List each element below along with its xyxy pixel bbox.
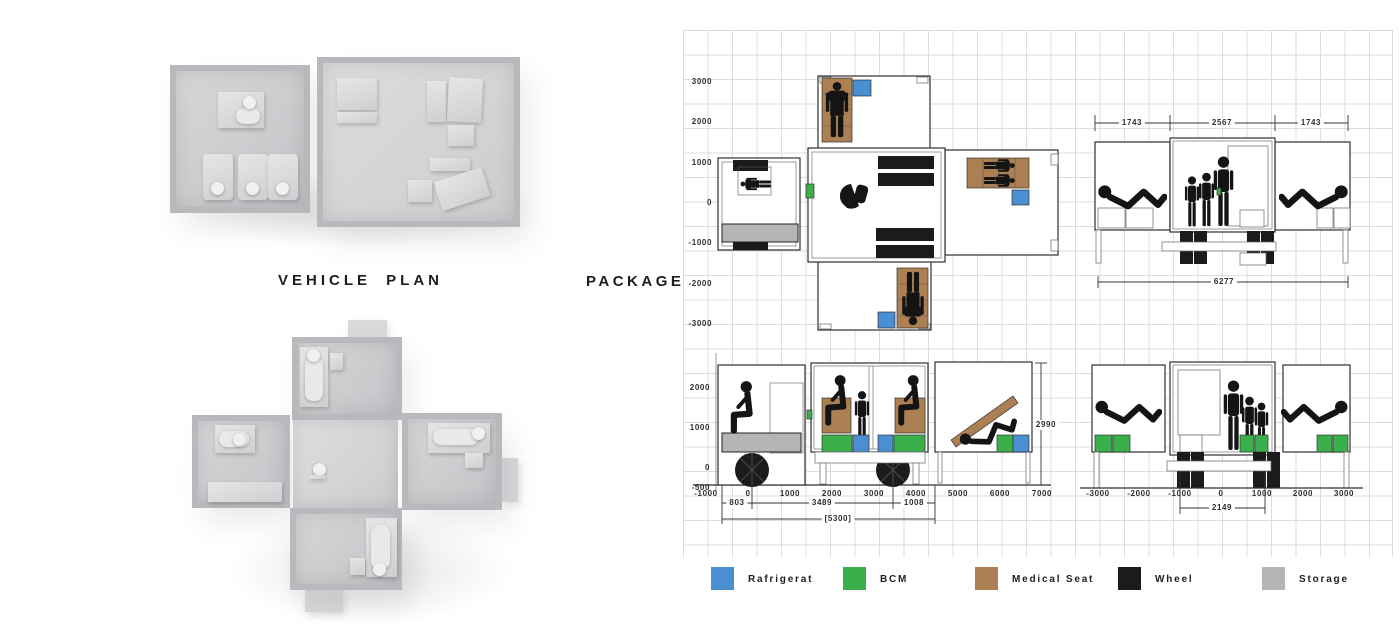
rear-x-axis-label: -3000	[1076, 489, 1120, 499]
refrigerator-block	[878, 435, 893, 452]
side-x-axis-label: 7000	[1020, 489, 1064, 499]
bcm-block	[806, 184, 814, 198]
render-figure-head	[373, 563, 386, 576]
plan-y-axis-label: 3000	[692, 77, 712, 87]
refrigerator-block	[853, 80, 871, 96]
bcm-block	[997, 435, 1013, 452]
plan-y-axis-label: -1000	[689, 238, 712, 248]
dim-label-total-length: [5300]	[822, 514, 855, 524]
render-couch	[208, 482, 282, 502]
render-figure-body	[305, 357, 323, 401]
legend-swatch	[711, 567, 734, 590]
rear-x-axis-label: 1000	[1240, 489, 1284, 499]
bcm-block	[1113, 435, 1130, 452]
plan-y-axis-label: 0	[707, 198, 712, 208]
render-bed	[337, 78, 377, 110]
side-x-axis-label: 5000	[936, 489, 980, 499]
bcm-block	[1255, 435, 1268, 452]
refrigerator-block	[853, 435, 869, 452]
wheel-block	[876, 228, 934, 241]
render-box	[330, 353, 343, 370]
wheel-block	[876, 245, 934, 258]
refrigerator-block	[1013, 435, 1029, 452]
render-box	[408, 180, 432, 202]
side-x-axis-label: 4000	[894, 489, 938, 499]
render-figure-head	[246, 182, 259, 195]
plan-y-axis-label: -2000	[689, 279, 712, 289]
dim-label-body: 2567	[1209, 118, 1235, 128]
bcm-block	[1240, 435, 1254, 452]
legend-swatch	[1118, 567, 1141, 590]
bcm-block	[1317, 435, 1332, 452]
front-wheel	[735, 453, 769, 487]
dim-label-total-width: 6277	[1211, 277, 1237, 287]
render-box	[350, 558, 365, 575]
render-box	[465, 453, 483, 468]
wheel-block	[878, 156, 934, 169]
render-step-right	[502, 458, 518, 502]
dim-label-track: 2149	[1209, 503, 1235, 513]
render-vehicle-plan-expanded	[185, 315, 530, 637]
storage-block	[722, 433, 801, 452]
legend-swatch	[975, 567, 998, 590]
rear-x-axis-label: -1000	[1158, 489, 1202, 499]
rear-x-axis-label: 3000	[1322, 489, 1366, 499]
render-slab	[430, 158, 470, 171]
dim-label-pod-right: 1743	[1298, 118, 1324, 128]
render-box	[448, 125, 474, 146]
rear-x-axis-label: 0	[1199, 489, 1243, 499]
render-wardrobe	[447, 77, 483, 123]
dim-label-rear-overhang: 1008	[901, 498, 927, 508]
plan-y-axis-label: -3000	[689, 319, 712, 329]
bcm-block	[1095, 435, 1112, 452]
render-figure-head	[243, 96, 256, 109]
side-y-axis-label: 2000	[690, 383, 710, 393]
render-wardrobe	[427, 81, 446, 122]
legend-label: Rafrigerat	[748, 574, 813, 585]
render-figure-body	[236, 108, 260, 124]
legend-label: BCM	[880, 574, 908, 585]
render-figure-head	[276, 182, 289, 195]
render-center-figure	[309, 475, 325, 479]
plan-y-axis-label: 1000	[692, 158, 712, 168]
render-vehicle-plan-top	[150, 8, 570, 238]
storage-block	[722, 224, 798, 242]
refrigerator-block	[878, 312, 895, 328]
cad-drawings	[683, 30, 1392, 557]
render-figure-head	[233, 433, 246, 446]
render-bed-slab	[337, 112, 377, 123]
render-figure-head	[211, 182, 224, 195]
bcm-block	[822, 435, 852, 452]
plan-y-axis-label: 2000	[692, 117, 712, 127]
bcm-block	[894, 435, 925, 452]
title-package: PACKAGE	[586, 273, 684, 290]
render-step-top	[348, 320, 387, 338]
front-elevation-drawing	[1095, 115, 1350, 288]
legend-label: Wheel	[1155, 574, 1193, 585]
side-y-axis-label: 1000	[690, 423, 710, 433]
render-figure-head	[472, 427, 485, 440]
dim-label-height: 2990	[1033, 420, 1059, 430]
rear-x-axis-label: -2000	[1117, 489, 1161, 499]
render-center-room	[293, 420, 398, 508]
dim-label-wheelbase: 3489	[809, 498, 835, 508]
legend-swatch	[843, 567, 866, 590]
refrigerator-block	[1012, 190, 1029, 205]
render-step-bottom	[305, 590, 343, 612]
legend-swatch	[1262, 567, 1285, 590]
side-x-axis-label: 1000	[768, 489, 812, 499]
side-x-axis-label: 0	[726, 489, 770, 499]
rear-x-axis-label: 2000	[1281, 489, 1325, 499]
side-x-axis-label: 3000	[852, 489, 896, 499]
plan-view-drawing	[718, 76, 1058, 330]
side-x-axis-label: -1000	[684, 489, 728, 499]
dim-label-pod-left: 1743	[1119, 118, 1145, 128]
side-x-axis-label: 2000	[810, 489, 854, 499]
side-y-axis-label: 0	[705, 463, 710, 473]
title-vehicle-plan: VEHICLE PLAN	[278, 272, 443, 289]
presentation-canvas: VEHICLE PLAN PACKAGE	[0, 0, 1400, 637]
dim-label-front-overhang: 803	[726, 498, 747, 508]
side-x-axis-label: 6000	[978, 489, 1022, 499]
render-figure-head	[307, 349, 320, 362]
wheel-block	[878, 173, 934, 186]
bcm-block	[1333, 435, 1348, 452]
legend-label: Storage	[1299, 574, 1349, 585]
legend-label: Medical Seat	[1012, 574, 1094, 585]
